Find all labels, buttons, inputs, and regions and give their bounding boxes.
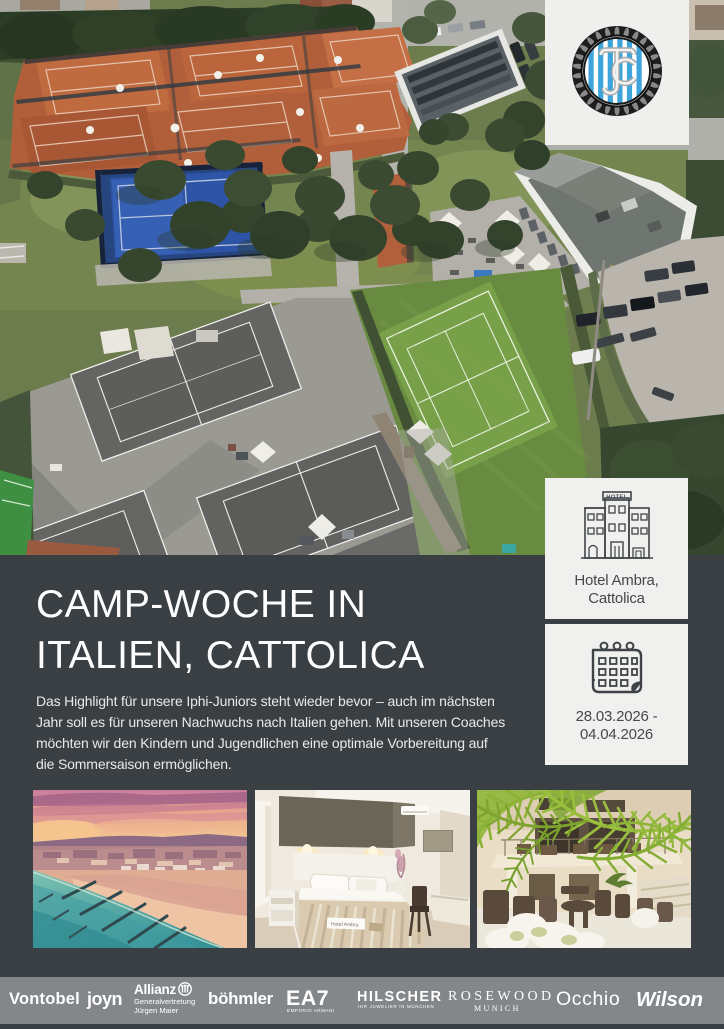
svg-text:HILSCHER: HILSCHER: [357, 989, 442, 1005]
svg-text:IHR JUWELIER IN MÜNCHEN: IHR JUWELIER IN MÜNCHEN: [358, 1004, 434, 1009]
svg-text:Wilson: Wilson: [636, 988, 703, 1011]
svg-text:Occhio: Occhio: [556, 988, 620, 1010]
svg-text:EMPORIO ARMANI: EMPORIO ARMANI: [287, 1008, 335, 1013]
svg-text:joyn: joyn: [86, 989, 122, 1009]
svg-text:böhmler: böhmler: [208, 989, 274, 1008]
svg-text:EA7: EA7: [286, 986, 329, 1010]
svg-text:Allianz: Allianz: [134, 982, 177, 997]
svg-text:Vontobel: Vontobel: [9, 990, 80, 1008]
svg-text:MUNICH: MUNICH: [474, 1004, 521, 1013]
svg-text:Generalvertretung: Generalvertretung: [134, 997, 195, 1006]
svg-text:Hotel Ambra: Hotel Ambra: [331, 921, 359, 928]
svg-text:ROSEWOOD: ROSEWOOD: [448, 989, 555, 1004]
svg-text:HOTEL: HOTEL: [606, 495, 627, 501]
svg-text:Jürgen Maier: Jürgen Maier: [134, 1006, 179, 1015]
